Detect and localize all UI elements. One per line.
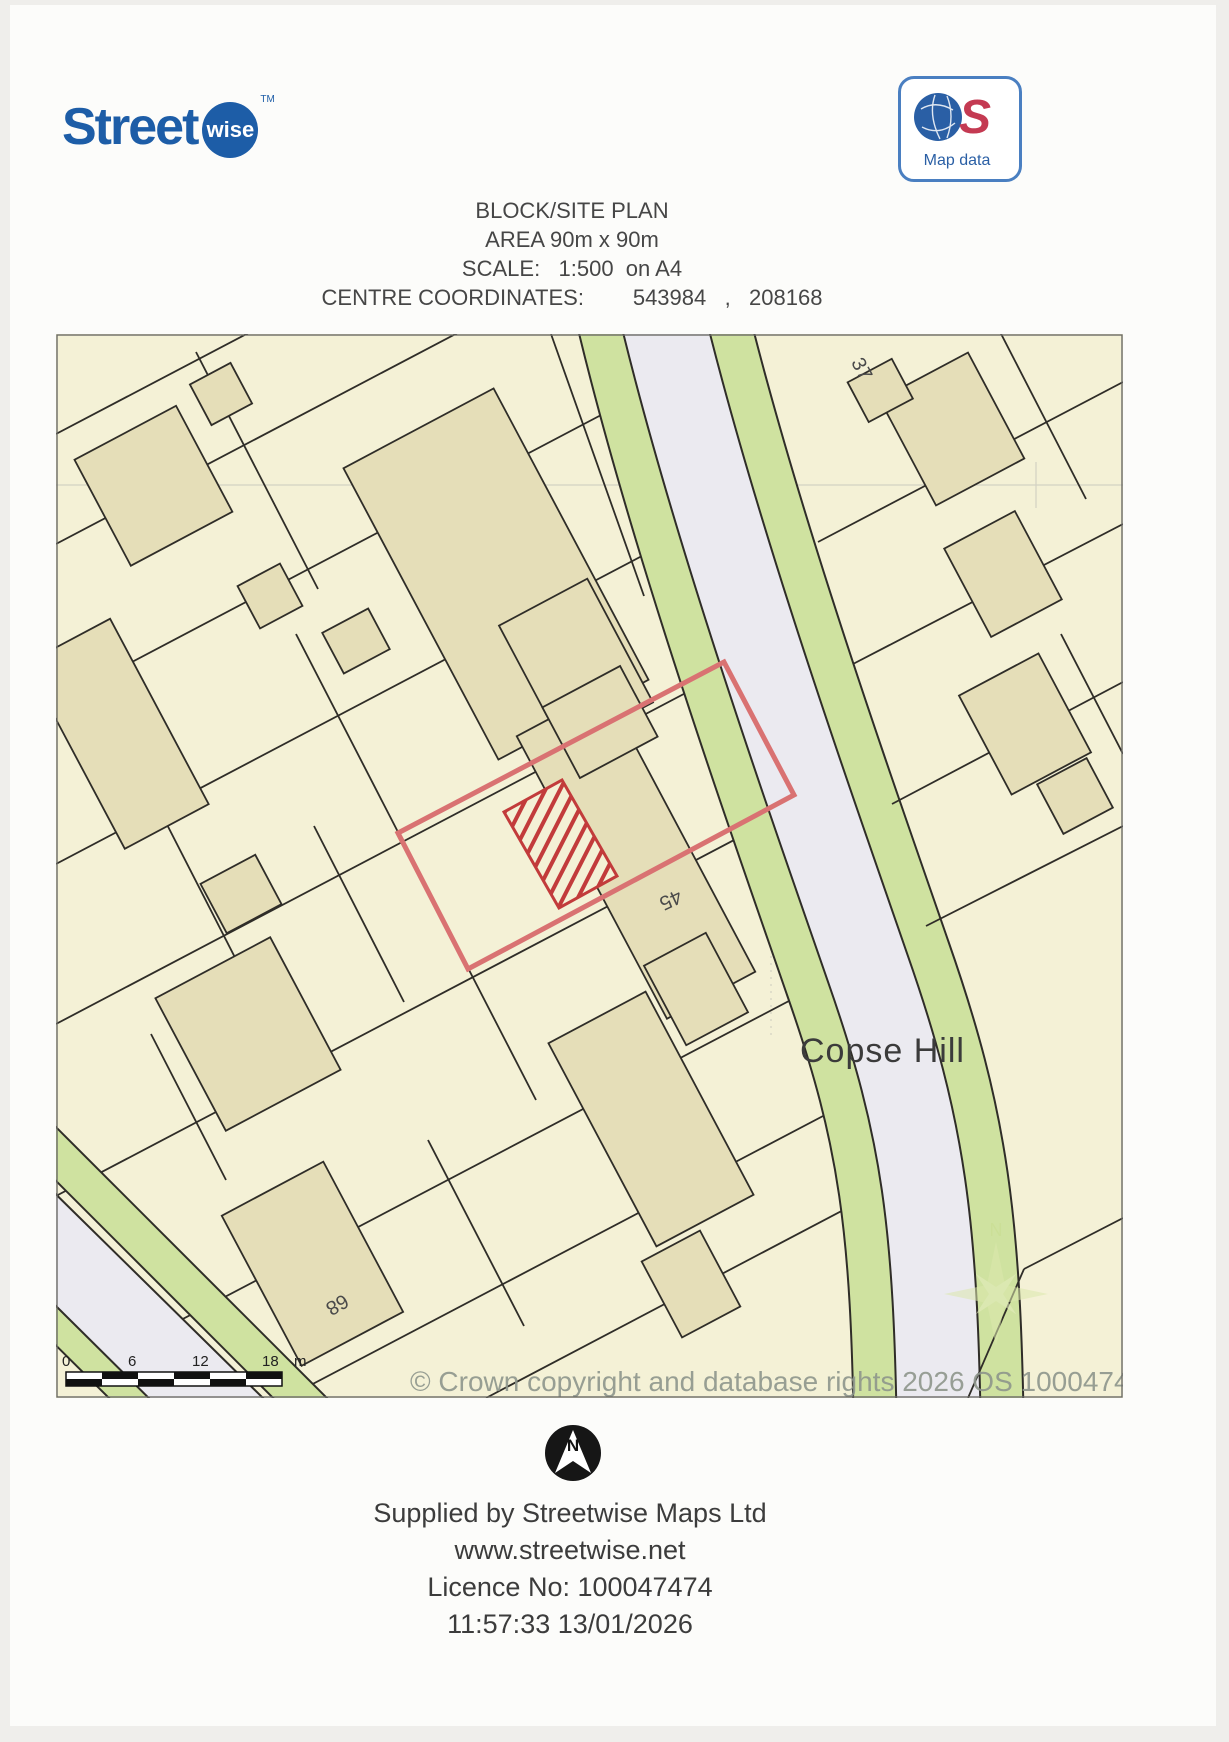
plan-centre-coordinates: CENTRE COORDINATES: 543984 , 208168 — [72, 283, 1072, 312]
document-footer: Supplied by Streetwise Maps Ltd www.stre… — [70, 1495, 1070, 1643]
streetwise-logo-disc: wise — [202, 102, 258, 158]
os-logo-s: S — [959, 91, 991, 144]
plan-header: BLOCK/SITE PLAN AREA 90m x 90m SCALE: 1:… — [72, 196, 1072, 312]
svg-text:N: N — [990, 1220, 1003, 1240]
plan-scale: SCALE: 1:500 on A4 — [72, 254, 1072, 283]
website-line: www.streetwise.net — [70, 1532, 1070, 1569]
svg-text:0: 0 — [62, 1353, 70, 1370]
street-label-copse-hill: Copse Hill — [800, 1032, 965, 1070]
licence-line: Licence No: 100047474 — [70, 1569, 1070, 1606]
plan-title: BLOCK/SITE PLAN — [72, 196, 1072, 225]
streetwise-logo-text: Street — [62, 97, 197, 157]
svg-text:6: 6 — [128, 1353, 136, 1370]
crown-copyright-watermark: © Crown copyright and database rights 20… — [410, 1366, 1123, 1397]
streetwise-logo: Street wise TM — [62, 92, 275, 162]
svg-text:18: 18 — [262, 1353, 279, 1370]
timestamp-line: 11:57:33 13/01/2026 — [70, 1606, 1070, 1643]
svg-text:12: 12 — [192, 1353, 209, 1370]
os-map-data-badge: S Map data — [898, 76, 1022, 182]
svg-text:m: m — [294, 1353, 307, 1370]
supplier-line: Supplied by Streetwise Maps Ltd — [70, 1495, 1070, 1532]
north-arrow-letter: N — [567, 1436, 579, 1455]
trademark-symbol: TM — [260, 94, 274, 105]
site-plan-map: N Copse Hill 37 45 68 © Crown copyright … — [56, 334, 1123, 1398]
os-badge-graphic: S Map data — [901, 79, 1013, 173]
plan-area: AREA 90m x 90m — [72, 225, 1072, 254]
os-badge-label: Map data — [924, 152, 991, 169]
north-arrow-icon: N — [544, 1424, 602, 1482]
